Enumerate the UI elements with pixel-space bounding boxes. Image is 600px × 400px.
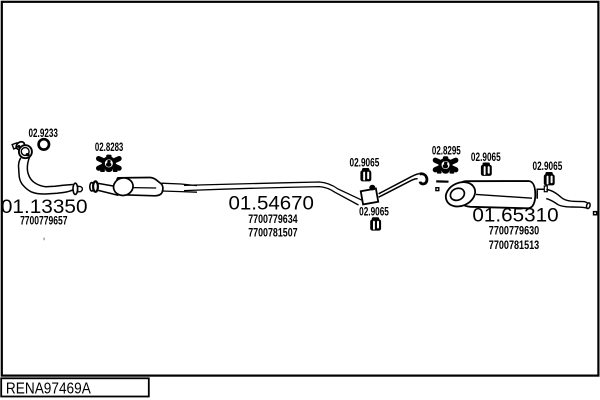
svg-text:02.9065: 02.9065 [359,206,389,219]
svg-text:7700779634: 7700779634 [248,213,297,227]
svg-text:02.9065: 02.9065 [471,151,501,164]
svg-text:RENA97469A: RENA97469A [6,381,91,398]
svg-text:02.8283: 02.8283 [95,141,124,154]
svg-text:02.8295: 02.8295 [432,145,461,158]
svg-text:7700781507: 7700781507 [248,226,297,240]
svg-text:7700781513: 7700781513 [489,239,539,253]
svg-text:02.9065: 02.9065 [350,157,380,170]
svg-text:7700779657: 7700779657 [20,215,68,228]
svg-text:01.54670: 01.54670 [229,193,314,215]
svg-text:02.9065: 02.9065 [533,161,563,174]
svg-text:7700779630: 7700779630 [489,224,539,238]
